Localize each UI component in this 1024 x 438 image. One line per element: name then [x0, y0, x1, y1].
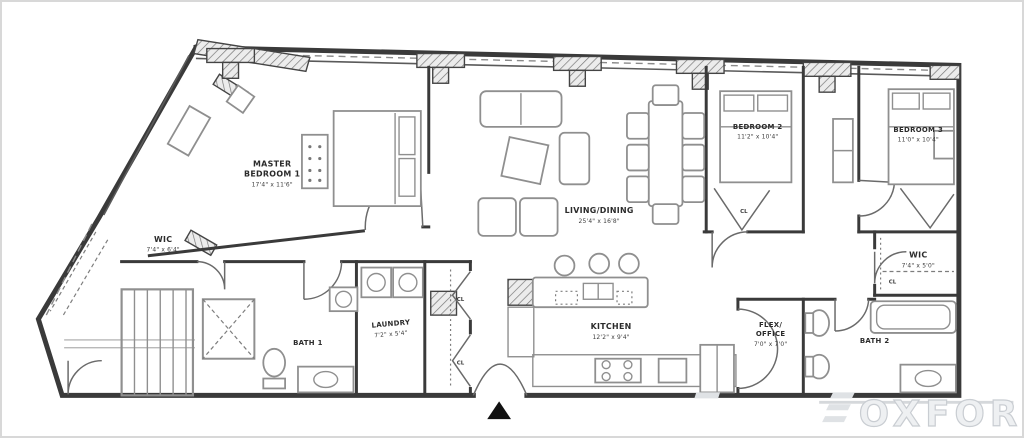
bedroom-3-door [859, 180, 895, 216]
floor-plan: MASTER BEDROOM 1 17'4" x 11'6" WIC 7'4" … [0, 0, 1024, 438]
wardrobe [302, 135, 328, 189]
armchair-right [560, 133, 590, 185]
room-dims-wic-left: 7'4" x 6'4" [147, 247, 180, 254]
svg-text:BEDROOM 1: BEDROOM 1 [244, 169, 300, 178]
closet-label: CL [889, 279, 897, 285]
room-label-living-dining: LIVING/DINING [565, 206, 634, 215]
bar-stool [555, 256, 575, 276]
cooktop [595, 359, 641, 383]
watermark: OXFORD [694, 392, 1022, 435]
entry-door-arch [473, 364, 527, 395]
room-dims-flex-office: 7'0" x 7'0" [754, 341, 787, 348]
stair-closet-door [68, 361, 102, 395]
room-label-laundry: LAUNDRY [371, 318, 411, 329]
room-dims-laundry: 7'2" x 5'4" [374, 329, 408, 339]
room-dims-bedroom-2: 11'2" x 10'4" [737, 134, 778, 141]
room-label-master-bedroom: MASTER [253, 159, 291, 168]
entry-marker-icon [487, 401, 511, 419]
bedroom-2-door [712, 232, 748, 268]
vanity [900, 365, 955, 393]
toilet [263, 349, 285, 377]
desk [168, 106, 210, 156]
kitchen-sink [659, 359, 687, 383]
room-label-bedroom-2: BEDROOM 2 [733, 123, 783, 131]
dining-table [649, 101, 683, 206]
kitchen-island [533, 277, 648, 307]
room-label-bath-2: BATH 2 [860, 337, 890, 345]
washer [361, 268, 391, 298]
bar-stool [619, 254, 639, 274]
stairs [64, 289, 195, 395]
armchair-2 [520, 198, 558, 236]
vanity [298, 367, 353, 393]
bathtub [871, 301, 956, 333]
bedroom-3-closet-doors [900, 188, 954, 228]
laundry-fixtures [361, 268, 422, 298]
hall-closet-bifold-doors [453, 272, 471, 387]
bar-stool [589, 254, 609, 274]
armchair-1 [478, 198, 516, 236]
dryer [393, 268, 423, 298]
closet-label: CL [740, 209, 748, 215]
kitchen-pier [508, 279, 534, 305]
nightstand [934, 131, 954, 159]
stair-handrail [64, 340, 195, 348]
watermark-text: OXFORD [859, 394, 1022, 435]
bath-1-fixtures [203, 287, 358, 392]
room-dims-kitchen: 12'2" x 9'4" [592, 334, 629, 341]
room-label-wic-left: WIC [154, 235, 172, 244]
room-dims-bedroom-3: 11'0" x 10'4" [898, 137, 939, 144]
room-dims-wic-right: 7'4" x 5'0" [902, 263, 935, 270]
room-dims-master-bedroom: 17'4" x 11'6" [252, 181, 293, 188]
room-dims-living-dining: 25'4" x 16'8" [579, 218, 620, 225]
wic-left-door [197, 262, 225, 290]
shower [203, 299, 255, 358]
room-label-flex-office: FLEX/ [759, 321, 782, 329]
room-label-bath-1: BATH 1 [293, 339, 323, 347]
window-wall-left [46, 224, 92, 315]
dining-furniture [627, 85, 704, 224]
closet-label: CL [457, 361, 465, 367]
svg-text:OFFICE: OFFICE [756, 330, 786, 338]
room-label-bedroom-3: BEDROOM 3 [893, 126, 943, 134]
wic-left-shelving [50, 232, 107, 317]
room-label-wic-right: WIC [909, 251, 927, 260]
closet-label: CL [457, 297, 465, 303]
bath-2-door [835, 299, 869, 331]
coffee-table [501, 137, 548, 184]
floor-plan-drawing: MASTER BEDROOM 1 17'4" x 11'6" WIC 7'4" … [2, 2, 1022, 436]
master-bedroom-furniture [168, 85, 421, 206]
side-counter [508, 307, 534, 357]
bath-2-fixtures [805, 301, 956, 392]
room-label-kitchen: KITCHEN [591, 322, 632, 331]
